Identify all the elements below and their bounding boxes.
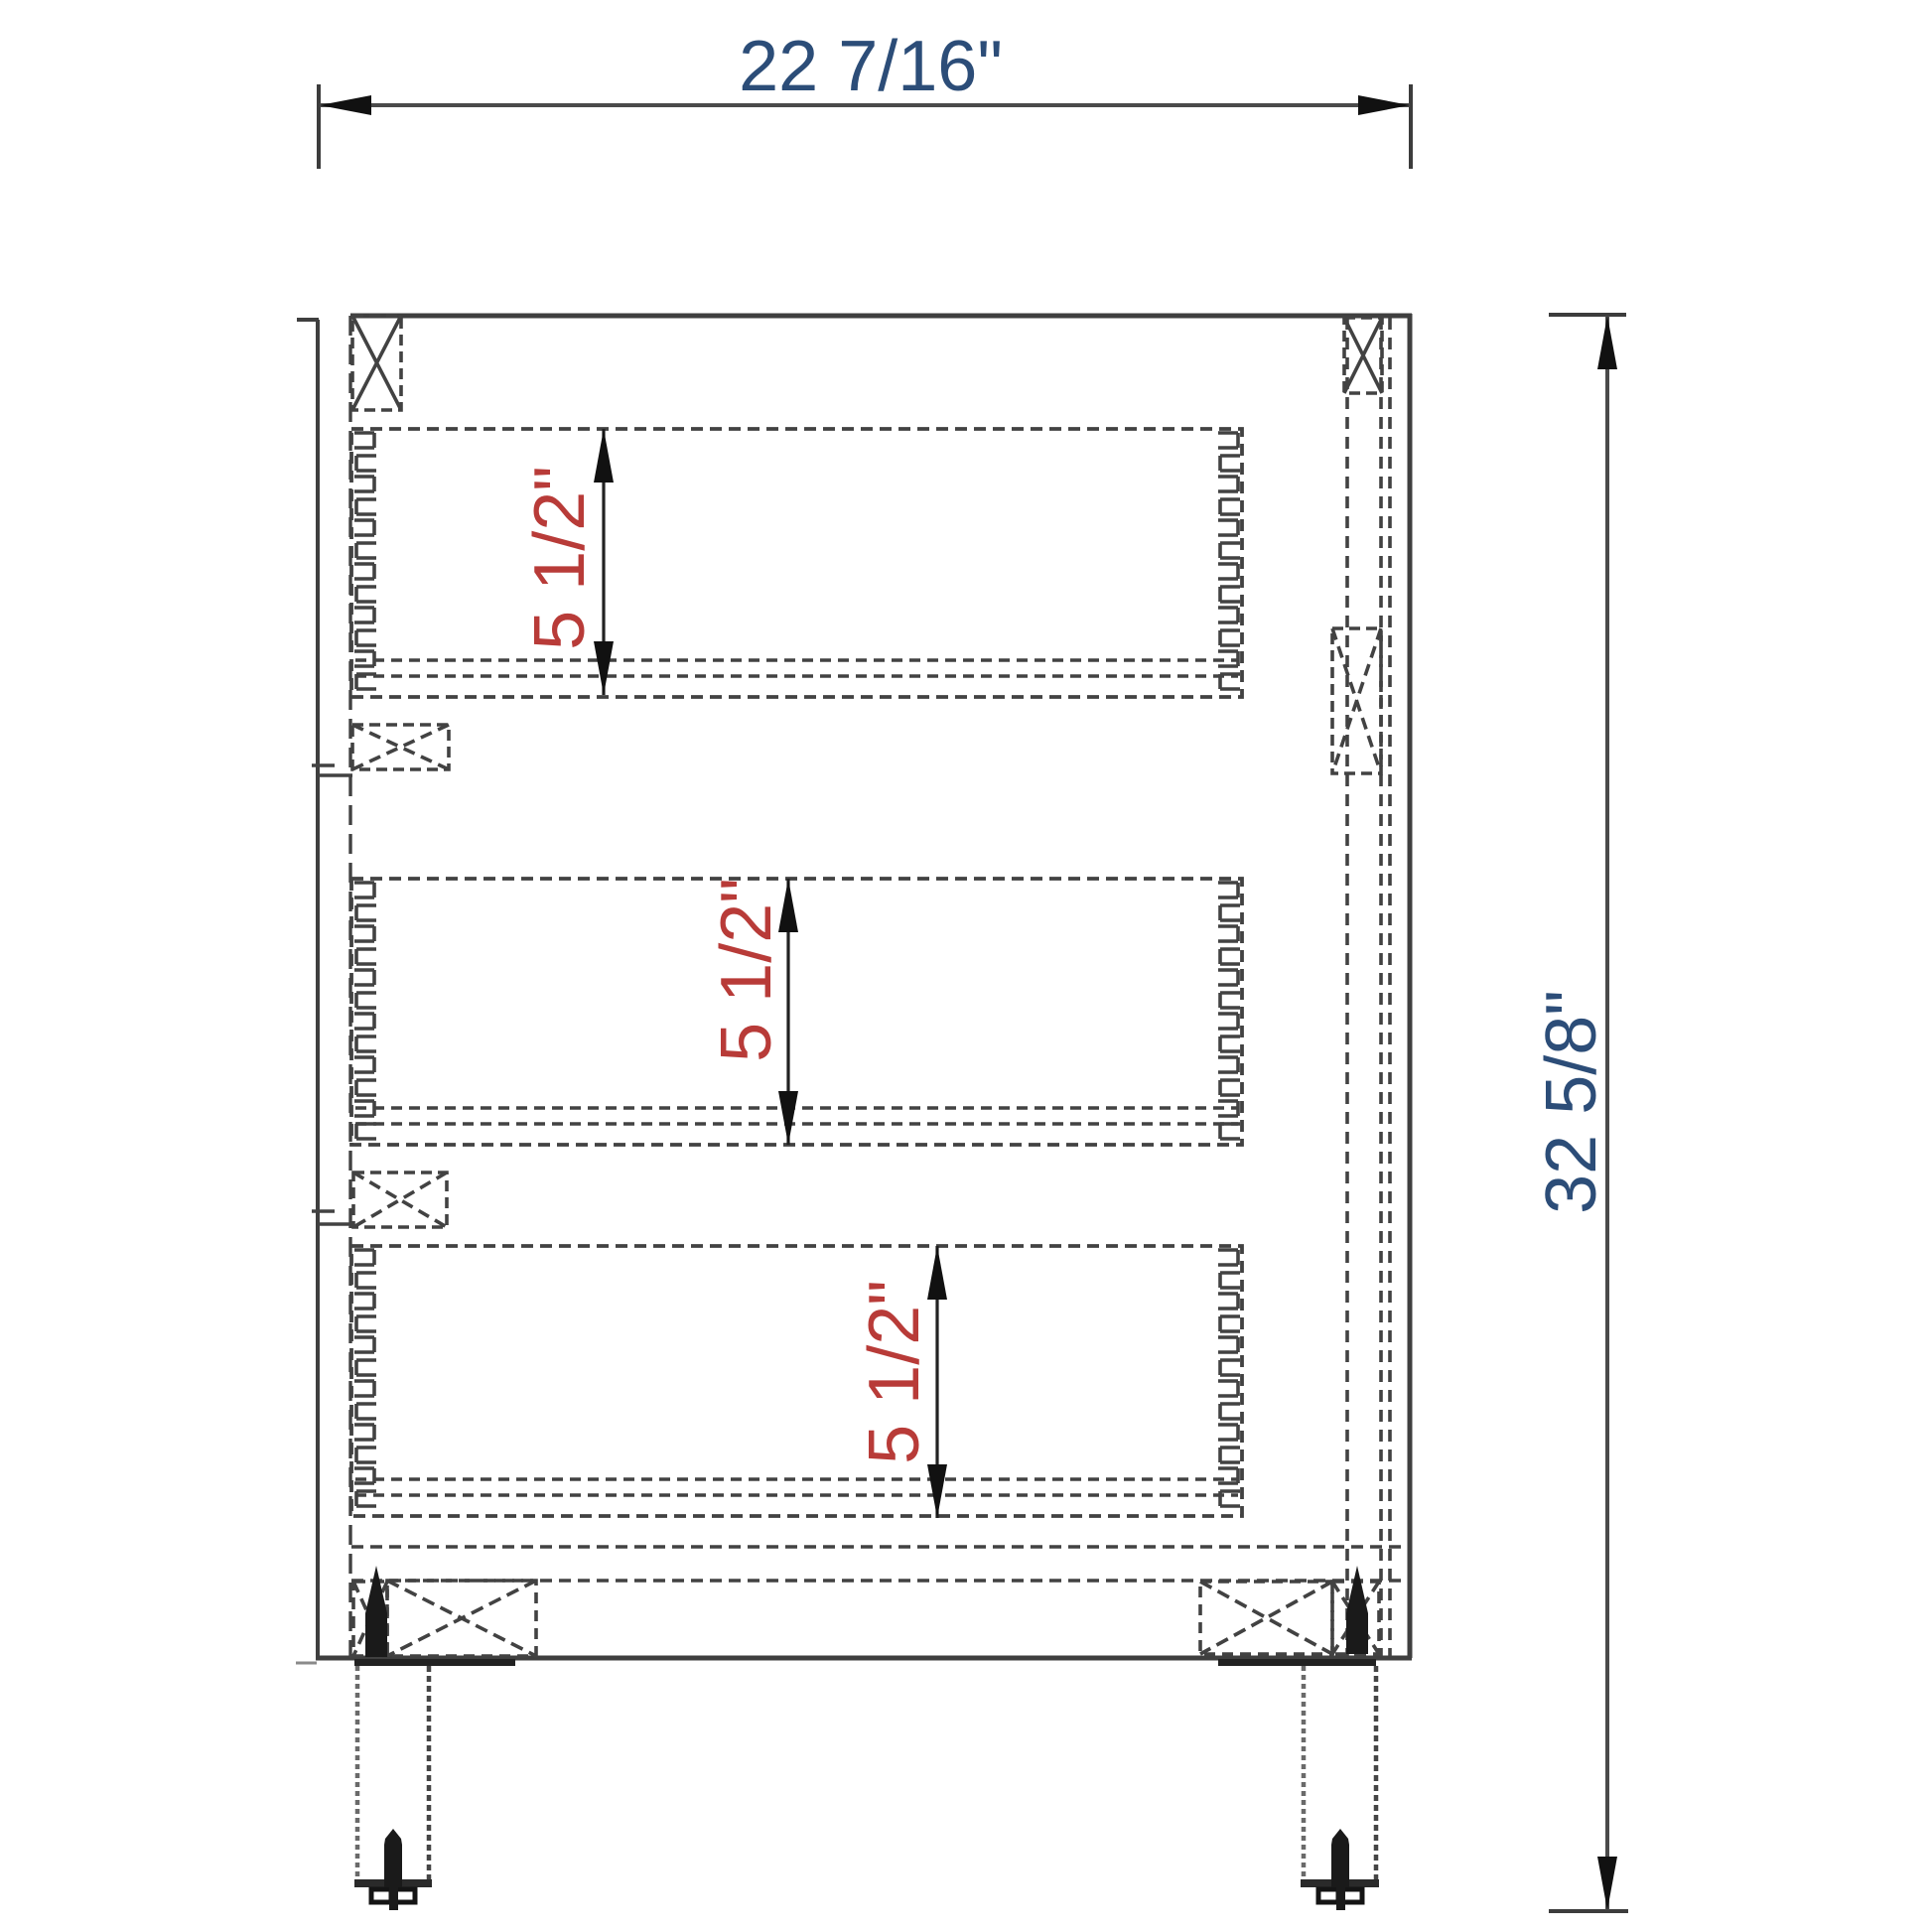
svg-text:5 1/2": 5 1/2" (707, 878, 786, 1062)
svg-text:22 7/16": 22 7/16" (739, 27, 1003, 106)
svg-text:5 1/2": 5 1/2" (855, 1280, 934, 1464)
svg-text:5 1/2": 5 1/2" (520, 466, 600, 650)
svg-text:32 5/8": 32 5/8" (1532, 990, 1611, 1214)
